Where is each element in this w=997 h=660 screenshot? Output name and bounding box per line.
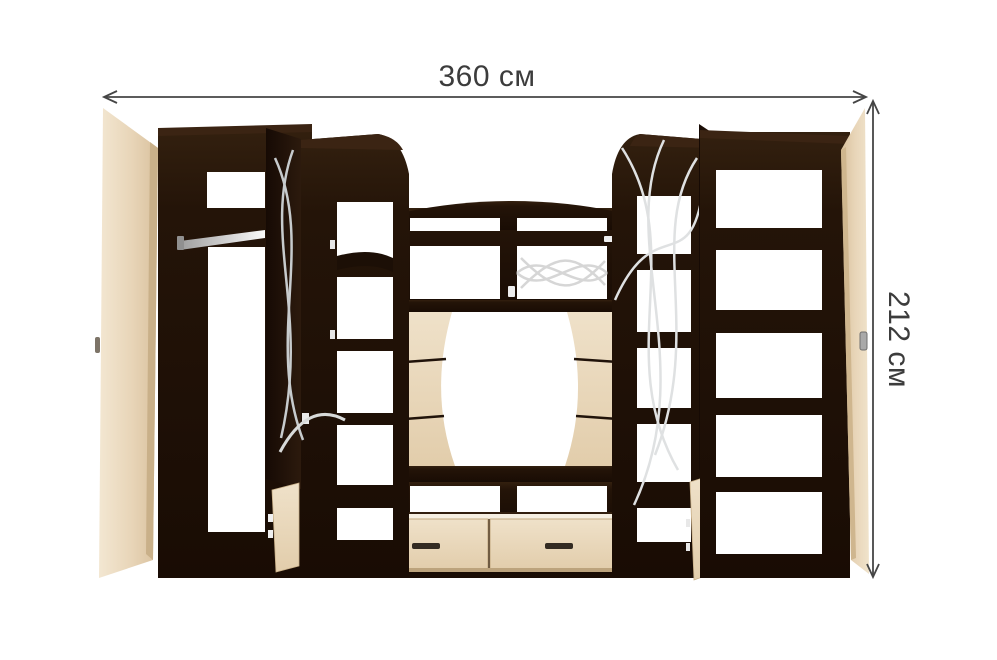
shelf-hardware	[508, 286, 515, 297]
furniture-illustration	[0, 0, 997, 660]
left-small-door-panel	[272, 483, 299, 572]
left-display-tower	[300, 134, 409, 578]
tower-cell	[337, 202, 393, 258]
bookcase-cell	[716, 250, 822, 310]
left-tower-top-edge	[300, 134, 403, 150]
width-dimension-label: 360 см	[387, 62, 587, 92]
bookcase-cell	[716, 333, 822, 398]
shelf-cell	[410, 218, 500, 231]
bookcase-cell	[716, 415, 822, 477]
tower-lower-cabinet-opening	[337, 508, 393, 540]
tower-cell	[337, 425, 393, 485]
bookcase-cell	[716, 170, 822, 228]
bookcase-section	[700, 130, 850, 578]
drawer-2-handle	[545, 543, 573, 549]
hinge-mark	[686, 543, 690, 551]
tower-cell	[337, 277, 393, 339]
tower-cell	[337, 351, 393, 413]
niche-bottom-shelf	[378, 466, 628, 482]
left-door-open	[95, 108, 158, 578]
height-dimension-label: 212 см	[883, 291, 913, 388]
niche-top-shelf	[396, 300, 628, 312]
shelf-cell	[517, 218, 607, 231]
tower-cell	[637, 270, 691, 332]
left-door-handle	[95, 337, 100, 353]
hinge-mark	[268, 530, 273, 538]
hinge-mark	[330, 240, 335, 249]
tower-cell	[637, 348, 691, 408]
bookcase-cell	[716, 492, 822, 554]
tv-niche-opening	[441, 312, 578, 466]
drawer-1-handle	[412, 543, 440, 549]
wardrobe-main-opening	[208, 247, 265, 532]
product-image: 360 см 212 см	[0, 0, 997, 660]
shelf-cell	[410, 246, 500, 299]
hinge-mark	[330, 330, 335, 339]
hanging-rail-bracket	[177, 236, 184, 250]
right-door-handle	[860, 332, 867, 350]
hinge-mark	[268, 514, 273, 522]
tower-lower-cabinet-opening	[637, 508, 691, 542]
wardrobe-top-opening	[207, 172, 265, 208]
hinge-mark	[686, 519, 690, 527]
